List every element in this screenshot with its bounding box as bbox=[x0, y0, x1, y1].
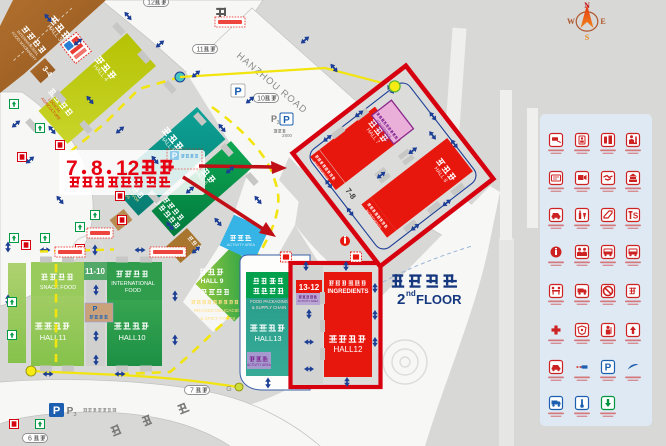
svg-text:8: 8 bbox=[91, 157, 103, 180]
svg-text:ACTIVITY AREA: ACTIVITY AREA bbox=[227, 243, 256, 247]
svg-text:& SPICY FOODS: & SPICY FOODS bbox=[201, 316, 236, 321]
svg-text:3: 3 bbox=[277, 120, 280, 126]
svg-text:13-12: 13-12 bbox=[299, 283, 320, 292]
svg-text:HALL13: HALL13 bbox=[254, 334, 281, 343]
svg-text:S: S bbox=[585, 33, 590, 42]
svg-text:W: W bbox=[567, 17, 575, 26]
svg-text:FOOD PACKAGING: FOOD PACKAGING bbox=[250, 299, 288, 304]
svg-text:ACTIVITY AREA: ACTIVITY AREA bbox=[298, 299, 319, 303]
svg-text:2: 2 bbox=[397, 291, 405, 308]
svg-text:& SUPPLY CHAIN: & SUPPLY CHAIN bbox=[252, 305, 286, 310]
svg-text:nd: nd bbox=[406, 289, 416, 298]
svg-text:ACTIVITY AREA: ACTIVITY AREA bbox=[247, 363, 272, 367]
svg-text:10: 10 bbox=[257, 95, 265, 102]
svg-text:P: P bbox=[172, 152, 178, 161]
svg-text:HALL10: HALL10 bbox=[118, 333, 145, 342]
svg-text:N: N bbox=[584, 1, 590, 10]
svg-text:S: S bbox=[633, 212, 639, 221]
svg-text:INGREDIENTS: INGREDIENTS bbox=[327, 289, 368, 295]
svg-text:SNACK FOOD: SNACK FOOD bbox=[40, 285, 76, 291]
svg-text:12: 12 bbox=[147, 0, 155, 6]
svg-text:7: 7 bbox=[66, 157, 78, 180]
svg-text:7: 7 bbox=[190, 387, 194, 394]
svg-text:2800: 2800 bbox=[282, 133, 293, 138]
svg-text:HALL11: HALL11 bbox=[40, 333, 67, 342]
svg-text:RRAISED DELICACIES: RRAISED DELICACIES bbox=[194, 308, 242, 313]
svg-text:FLOOR: FLOOR bbox=[416, 292, 462, 307]
svg-text:FOOD: FOOD bbox=[125, 288, 141, 294]
svg-text:P: P bbox=[605, 363, 612, 374]
svg-text:P: P bbox=[283, 115, 290, 126]
svg-text:P: P bbox=[53, 405, 60, 417]
svg-text:11-10: 11-10 bbox=[85, 267, 106, 276]
svg-text:G: G bbox=[226, 386, 231, 393]
svg-text:6: 6 bbox=[28, 435, 32, 442]
svg-text:INTERNATIONAL: INTERNATIONAL bbox=[111, 281, 155, 287]
svg-text:P: P bbox=[234, 86, 241, 98]
svg-text:11: 11 bbox=[196, 46, 203, 53]
svg-text:12: 12 bbox=[116, 157, 139, 180]
svg-text:P: P bbox=[93, 306, 98, 313]
svg-text:HALL12: HALL12 bbox=[334, 345, 363, 354]
svg-text:HALL 9: HALL 9 bbox=[201, 278, 224, 285]
svg-text:E: E bbox=[600, 17, 605, 26]
svg-text:3: 3 bbox=[73, 412, 76, 418]
